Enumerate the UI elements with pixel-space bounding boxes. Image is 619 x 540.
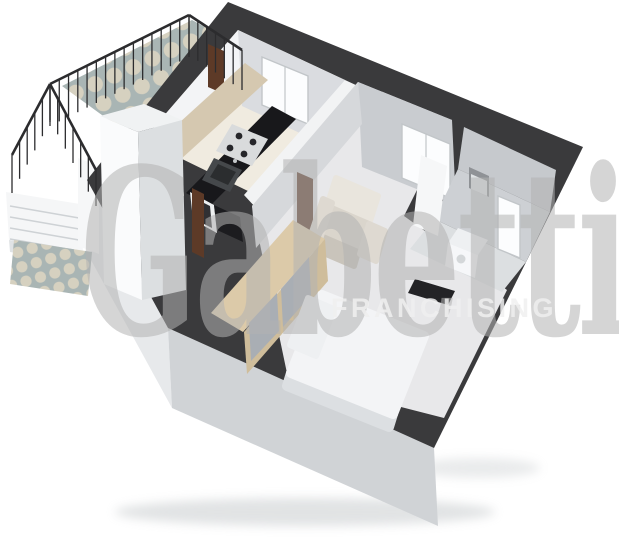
watermark-brand: Gabetti	[80, 118, 619, 388]
watermark-subtitle: FRANCHISING	[331, 293, 557, 323]
watermark: Gabetti FRANCHISING	[80, 118, 619, 388]
shadow-bottom	[115, 498, 495, 526]
floorplan-render: Gabetti FRANCHISING	[0, 0, 619, 540]
floorplan-svg: Gabetti FRANCHISING	[0, 0, 619, 540]
